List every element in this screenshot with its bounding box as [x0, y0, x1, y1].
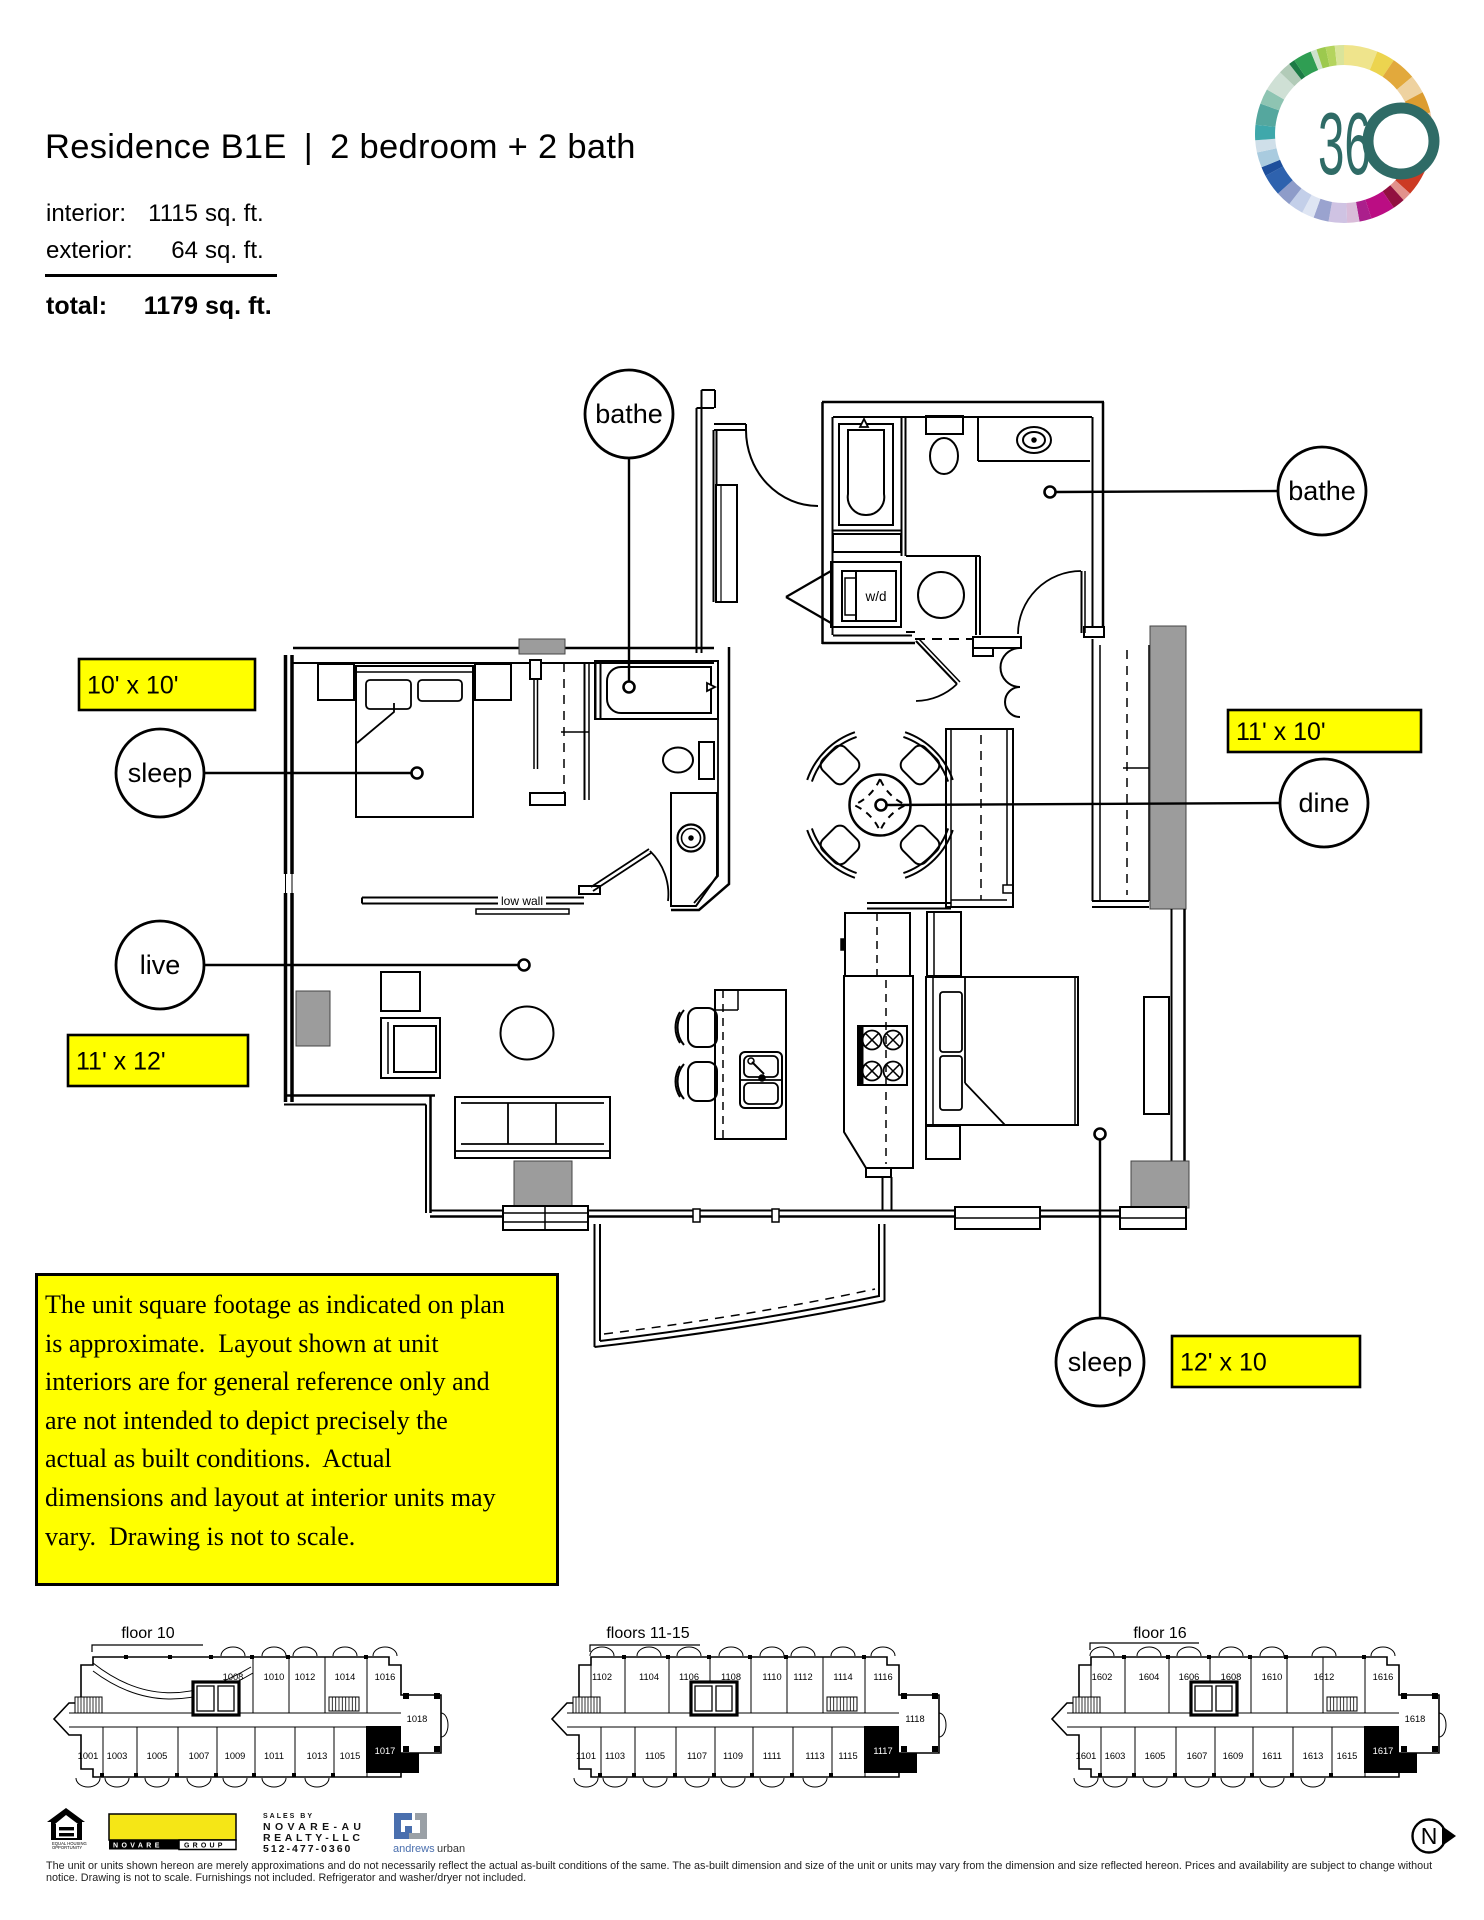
svg-text:floor 10: floor 10 [121, 1625, 174, 1642]
svg-text:1608: 1608 [1221, 1672, 1242, 1682]
svg-text:1615: 1615 [1337, 1751, 1358, 1761]
svg-text:1114: 1114 [833, 1672, 852, 1682]
svg-text:1601: 1601 [1076, 1751, 1097, 1761]
svg-text:1604: 1604 [1139, 1672, 1160, 1682]
svg-text:SALES BY: SALES BY [263, 1813, 314, 1820]
svg-text:1003: 1003 [107, 1751, 128, 1761]
svg-text:1102: 1102 [592, 1672, 612, 1682]
svg-text:11' x 10': 11' x 10' [1236, 718, 1326, 746]
svg-text:1610: 1610 [1262, 1672, 1283, 1682]
svg-text:1010: 1010 [264, 1672, 285, 1682]
svg-text:11' x 12': 11' x 12' [76, 1048, 166, 1076]
svg-text:1609: 1609 [1223, 1751, 1244, 1761]
svg-text:12' x 10: 12' x 10 [1180, 1349, 1267, 1377]
svg-text:1018: 1018 [407, 1714, 428, 1724]
svg-text:live: live [140, 950, 181, 980]
svg-text:1109: 1109 [723, 1751, 743, 1761]
svg-text:1617: 1617 [1373, 1746, 1394, 1756]
svg-text:1607: 1607 [1187, 1751, 1208, 1761]
svg-text:1112: 1112 [793, 1672, 812, 1682]
svg-text:1001: 1001 [78, 1751, 99, 1761]
svg-text:1104: 1104 [639, 1672, 659, 1682]
svg-text:bathe: bathe [595, 399, 663, 429]
svg-text:1005: 1005 [147, 1751, 168, 1761]
svg-text:1116: 1116 [873, 1672, 892, 1682]
svg-text:NOVARE: NOVARE [113, 1843, 163, 1850]
svg-text:1009: 1009 [225, 1751, 246, 1761]
svg-text:1014: 1014 [335, 1672, 356, 1682]
svg-text:1017: 1017 [375, 1746, 396, 1756]
svg-text:1113: 1113 [805, 1751, 824, 1761]
svg-text:1101: 1101 [576, 1751, 596, 1761]
svg-text:1118: 1118 [905, 1714, 924, 1724]
svg-text:1013: 1013 [307, 1751, 328, 1761]
svg-text:1618: 1618 [1405, 1714, 1426, 1724]
svg-text:1612: 1612 [1314, 1672, 1335, 1682]
svg-text:OPPORTUNITY: OPPORTUNITY [52, 1845, 82, 1850]
svg-text:1007: 1007 [189, 1751, 210, 1761]
svg-text:1605: 1605 [1145, 1751, 1166, 1761]
svg-text:andrews: andrews [393, 1843, 435, 1855]
svg-text:1602: 1602 [1092, 1672, 1113, 1682]
svg-text:1015: 1015 [340, 1751, 361, 1761]
svg-text:sleep: sleep [128, 758, 193, 788]
svg-text:1106: 1106 [679, 1672, 699, 1682]
svg-text:1606: 1606 [1179, 1672, 1200, 1682]
svg-text:low wall: low wall [501, 894, 543, 908]
svg-text:N: N [1421, 1823, 1438, 1849]
svg-text:1107: 1107 [687, 1751, 707, 1761]
svg-text:1103: 1103 [605, 1751, 625, 1761]
svg-text:1108: 1108 [721, 1672, 741, 1682]
svg-text:floors 11-15: floors 11-15 [606, 1625, 689, 1642]
svg-text:w/d: w/d [864, 589, 886, 604]
svg-text:1011: 1011 [264, 1751, 284, 1761]
svg-text:1613: 1613 [1303, 1751, 1324, 1761]
svg-text:1115: 1115 [838, 1751, 857, 1761]
svg-text:1611: 1611 [1262, 1751, 1282, 1761]
svg-text:1016: 1016 [375, 1672, 396, 1682]
svg-text:512-477-0360: 512-477-0360 [263, 1843, 352, 1855]
svg-text:1603: 1603 [1105, 1751, 1126, 1761]
svg-text:bathe: bathe [1288, 476, 1356, 506]
svg-text:1110: 1110 [762, 1672, 781, 1682]
svg-text:1111: 1111 [763, 1751, 782, 1761]
svg-text:1616: 1616 [1373, 1672, 1394, 1682]
svg-text:urban: urban [437, 1843, 465, 1855]
svg-text:1117: 1117 [873, 1746, 892, 1756]
svg-text:GROUP: GROUP [184, 1843, 226, 1850]
svg-text:1105: 1105 [645, 1751, 665, 1761]
svg-text:sleep: sleep [1068, 1347, 1133, 1377]
svg-text:1012: 1012 [295, 1672, 316, 1682]
svg-text:floor 16: floor 16 [1133, 1625, 1186, 1642]
svg-text:10' x 10': 10' x 10' [87, 672, 179, 700]
svg-text:1008: 1008 [223, 1672, 244, 1682]
svg-text:dine: dine [1298, 788, 1349, 818]
